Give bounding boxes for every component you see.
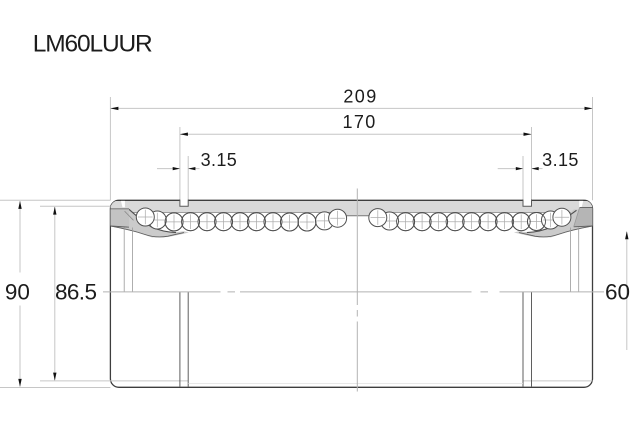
svg-text:60: 60: [605, 279, 630, 304]
svg-text:209: 209: [343, 86, 377, 106]
svg-text:LM60LUUR: LM60LUUR: [33, 30, 152, 57]
svg-text:86.5: 86.5: [55, 279, 96, 304]
svg-text:170: 170: [342, 112, 376, 132]
svg-text:90: 90: [5, 279, 30, 304]
svg-text:3.15: 3.15: [542, 150, 579, 170]
svg-text:3.15: 3.15: [201, 150, 238, 170]
